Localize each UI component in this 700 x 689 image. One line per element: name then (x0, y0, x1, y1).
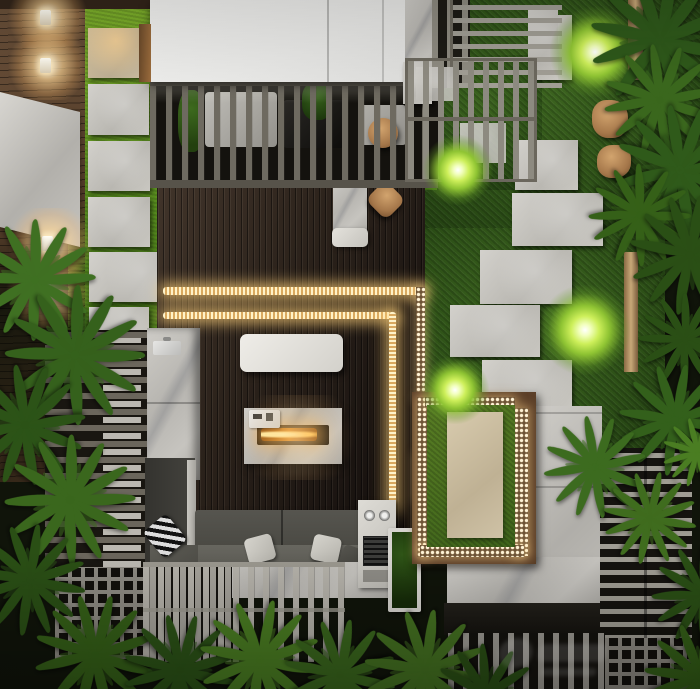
led-strip (163, 312, 396, 319)
grill-dial (364, 510, 375, 521)
pergola-panel-vertical (405, 58, 537, 182)
stone-paver (480, 250, 572, 304)
dining-area (150, 80, 438, 188)
pergola-slats (150, 80, 438, 188)
deck-stool (332, 228, 368, 247)
pebble-led-edge (416, 287, 425, 399)
canopy-side-wood (139, 24, 151, 82)
wall-light (40, 10, 51, 25)
fire-control-unit (249, 410, 280, 428)
stone-paver (88, 197, 150, 247)
stone-paver (450, 305, 540, 357)
wall-light (40, 58, 51, 73)
planter-bench (412, 392, 536, 564)
stone-paver (88, 84, 149, 135)
sofa-pillow (310, 533, 343, 564)
bench-slab (447, 412, 503, 538)
courtyard-render (0, 0, 700, 689)
stone-paver (88, 141, 150, 191)
led-strip (163, 287, 425, 295)
fire-table (244, 408, 342, 464)
led-strip (389, 312, 396, 510)
stone-patio-lower (447, 557, 602, 607)
watermark (495, 630, 613, 686)
canopy-roof (150, 0, 407, 82)
wall-top-trim (0, 0, 152, 9)
deck-bench (240, 334, 343, 372)
burner-flames (261, 428, 317, 441)
grill-dial (379, 510, 390, 521)
